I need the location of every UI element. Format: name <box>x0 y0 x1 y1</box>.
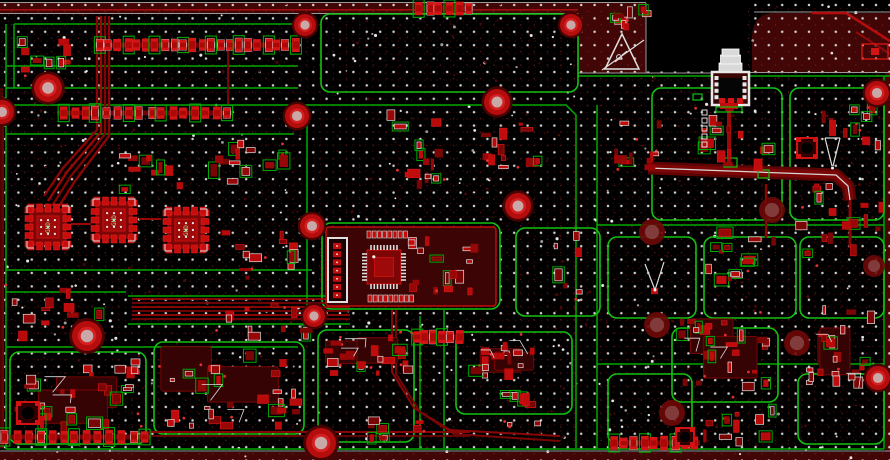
mounting-hole[interactable] <box>502 190 533 221</box>
ic-label: GND <box>45 222 52 233</box>
pcb-canvas[interactable]: GNDGNDGND <box>0 0 890 460</box>
mounting-hole[interactable] <box>298 212 327 241</box>
via-pad[interactable] <box>784 330 810 356</box>
via-pad[interactable] <box>863 255 885 277</box>
mounting-hole[interactable] <box>292 12 318 38</box>
pin1-mark <box>372 255 375 258</box>
via-pad[interactable] <box>659 400 685 426</box>
inductor[interactable] <box>676 428 694 446</box>
mounting-hole[interactable] <box>69 318 105 354</box>
mounting-hole[interactable] <box>301 303 327 329</box>
mounting-hole[interactable] <box>481 86 512 117</box>
qfn-ic[interactable]: GND <box>25 204 71 250</box>
via-pad[interactable] <box>644 312 670 338</box>
ic-label: GND <box>111 215 118 226</box>
qfn-ic[interactable]: GND <box>91 197 137 243</box>
inductor[interactable] <box>17 402 39 424</box>
mounting-hole[interactable] <box>558 12 584 38</box>
via-pad[interactable] <box>759 197 785 223</box>
qfn-ic[interactable]: GND <box>163 207 209 253</box>
inductor[interactable] <box>797 138 817 158</box>
mounting-hole[interactable] <box>31 71 65 105</box>
mounting-hole[interactable] <box>283 102 312 131</box>
mounting-hole[interactable] <box>303 425 339 460</box>
qfp-ic[interactable] <box>362 245 406 289</box>
via-pad[interactable] <box>639 219 665 245</box>
board-svg: GNDGNDGND <box>0 0 890 460</box>
ic-label: GND <box>183 225 190 236</box>
